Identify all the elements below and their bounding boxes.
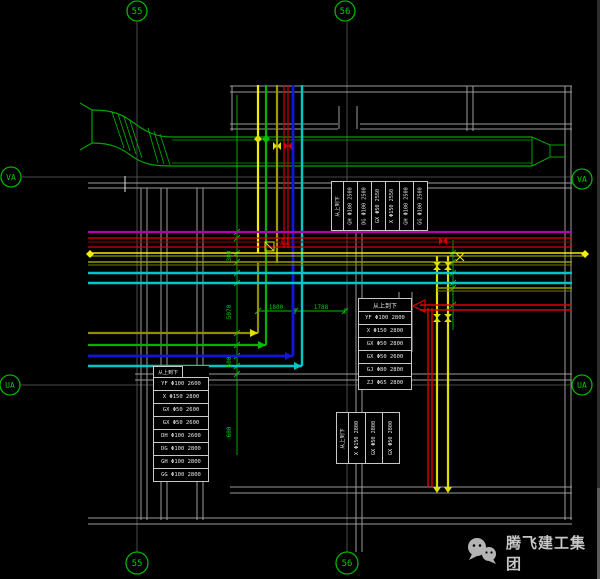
valve-bowtie xyxy=(433,266,441,270)
cad-canvas: 1800 1788 5070 300 600 600 55 56 55 56 V… xyxy=(0,0,600,579)
pipe-spec-row: GG Φ100 2800 xyxy=(153,468,209,482)
pipe-table-header: 从上到下 xyxy=(358,298,412,312)
dimension-label: 300 xyxy=(226,250,233,261)
dimension-label: 5070 xyxy=(226,304,233,319)
pipe-spec-cell: DG Φ100 2500 xyxy=(357,181,372,231)
valve-bowtie xyxy=(444,318,452,322)
pipe-spec-cell: GH Φ100 2500 xyxy=(399,181,414,231)
dimension-label: 1788 xyxy=(314,304,329,311)
pipe-spec-cell: GH Φ100 2500 xyxy=(343,181,358,231)
duct-hatch xyxy=(112,112,170,165)
green-diamond-marker xyxy=(262,135,270,143)
down-arrow xyxy=(433,487,441,493)
corner-arrow xyxy=(258,341,266,349)
grid-bubble-label: 55 xyxy=(132,559,143,569)
pipe-spec-cell: GX Φ50 2550 xyxy=(371,181,386,231)
grid-bubble-label: UA xyxy=(577,381,587,390)
pipe-spec-row: GH Φ100 2800 xyxy=(153,455,209,469)
dimension-label: 1800 xyxy=(269,304,284,311)
dimension-lines xyxy=(234,95,456,455)
yellow-diamond-marker xyxy=(254,135,262,143)
pipe-spec-row: ZJ Φ65 2800 xyxy=(358,376,412,390)
wall-lines xyxy=(88,86,572,552)
pipe-spec-row: X Φ150 2800 xyxy=(153,390,209,404)
pipe-spec-row: GX Φ50 2800 xyxy=(358,337,412,351)
wechat-icon xyxy=(466,537,500,569)
drawing-svg: 1800 1788 5070 300 600 600 55 56 55 56 V… xyxy=(0,0,600,579)
pipe-spec-cell: X Φ150 2550 xyxy=(385,181,400,231)
brand-name: 腾飞建工集团 xyxy=(506,532,600,574)
pipe-spec-row: GX Φ50 2600 xyxy=(153,403,209,417)
pipe-spec-row: GX Φ50 2600 xyxy=(358,350,412,364)
pipe-table-top-right: 从上到下 GH Φ100 2500 DG Φ100 2500 GX Φ50 25… xyxy=(332,181,428,231)
grid-bubble-label: VA xyxy=(6,173,16,182)
pipe-table-left: 从上到下 YF Φ100 2600 X Φ150 2800 GX Φ50 260… xyxy=(153,366,209,482)
valve-bowtie xyxy=(433,318,441,322)
hvac-duct xyxy=(80,103,566,166)
pipe-spec-row: YF Φ100 2600 xyxy=(153,377,209,391)
grid-bubble-label: VA xyxy=(577,175,587,184)
grid-bubble-label: UA xyxy=(5,381,15,390)
red-valve xyxy=(282,238,288,244)
corner-arrow xyxy=(250,329,258,337)
pipe-spec-cell: GG Φ100 2500 xyxy=(413,181,428,231)
dimension-label: 600 xyxy=(226,426,233,437)
valve-bowtie xyxy=(433,314,441,318)
pipe-spec-row: DG Φ100 2800 xyxy=(153,442,209,456)
yellow-diamond-marker xyxy=(581,250,589,258)
grid-bubble-label: 56 xyxy=(340,7,351,17)
pipe-table-mid-right: 从上到下 YF Φ100 2800 X Φ150 2800 GX Φ50 280… xyxy=(358,298,412,390)
pipe-spec-cell: X Φ150 2800 xyxy=(348,412,366,464)
pipe-spec-row: GX Φ50 2600 xyxy=(153,416,209,430)
grid-bubble-label: 55 xyxy=(132,7,143,17)
dimension-labels: 1800 1788 5070 300 600 600 xyxy=(226,250,329,437)
valve-bowtie xyxy=(444,266,452,270)
axis-grid-lines xyxy=(20,21,570,552)
pipe-spec-cell: GX Φ50 2800 xyxy=(382,412,400,464)
down-arrow xyxy=(444,487,452,493)
pipe-spec-row: GJ Φ80 2800 xyxy=(358,363,412,377)
yellow-cross xyxy=(456,253,464,261)
pipe-spec-row: YF Φ100 2800 xyxy=(358,311,412,325)
pipe-spec-cell: GX Φ50 2800 xyxy=(365,412,383,464)
dimension-label: 600 xyxy=(226,356,233,367)
valve-bowtie xyxy=(444,314,452,318)
grid-bubble-label: 56 xyxy=(342,559,353,569)
pipe-spec-row: X Φ150 2800 xyxy=(358,324,412,338)
pipe-spec-row: DH Φ100 2600 xyxy=(153,429,209,443)
pipe-table-bottom-center: 从上到下 X Φ150 2800 GX Φ50 2800 GX Φ50 2800 xyxy=(337,412,400,464)
brand-watermark: 腾飞建工集团 xyxy=(466,532,600,574)
yellow-diamond-marker xyxy=(86,250,94,258)
pipe-mains xyxy=(88,232,585,366)
